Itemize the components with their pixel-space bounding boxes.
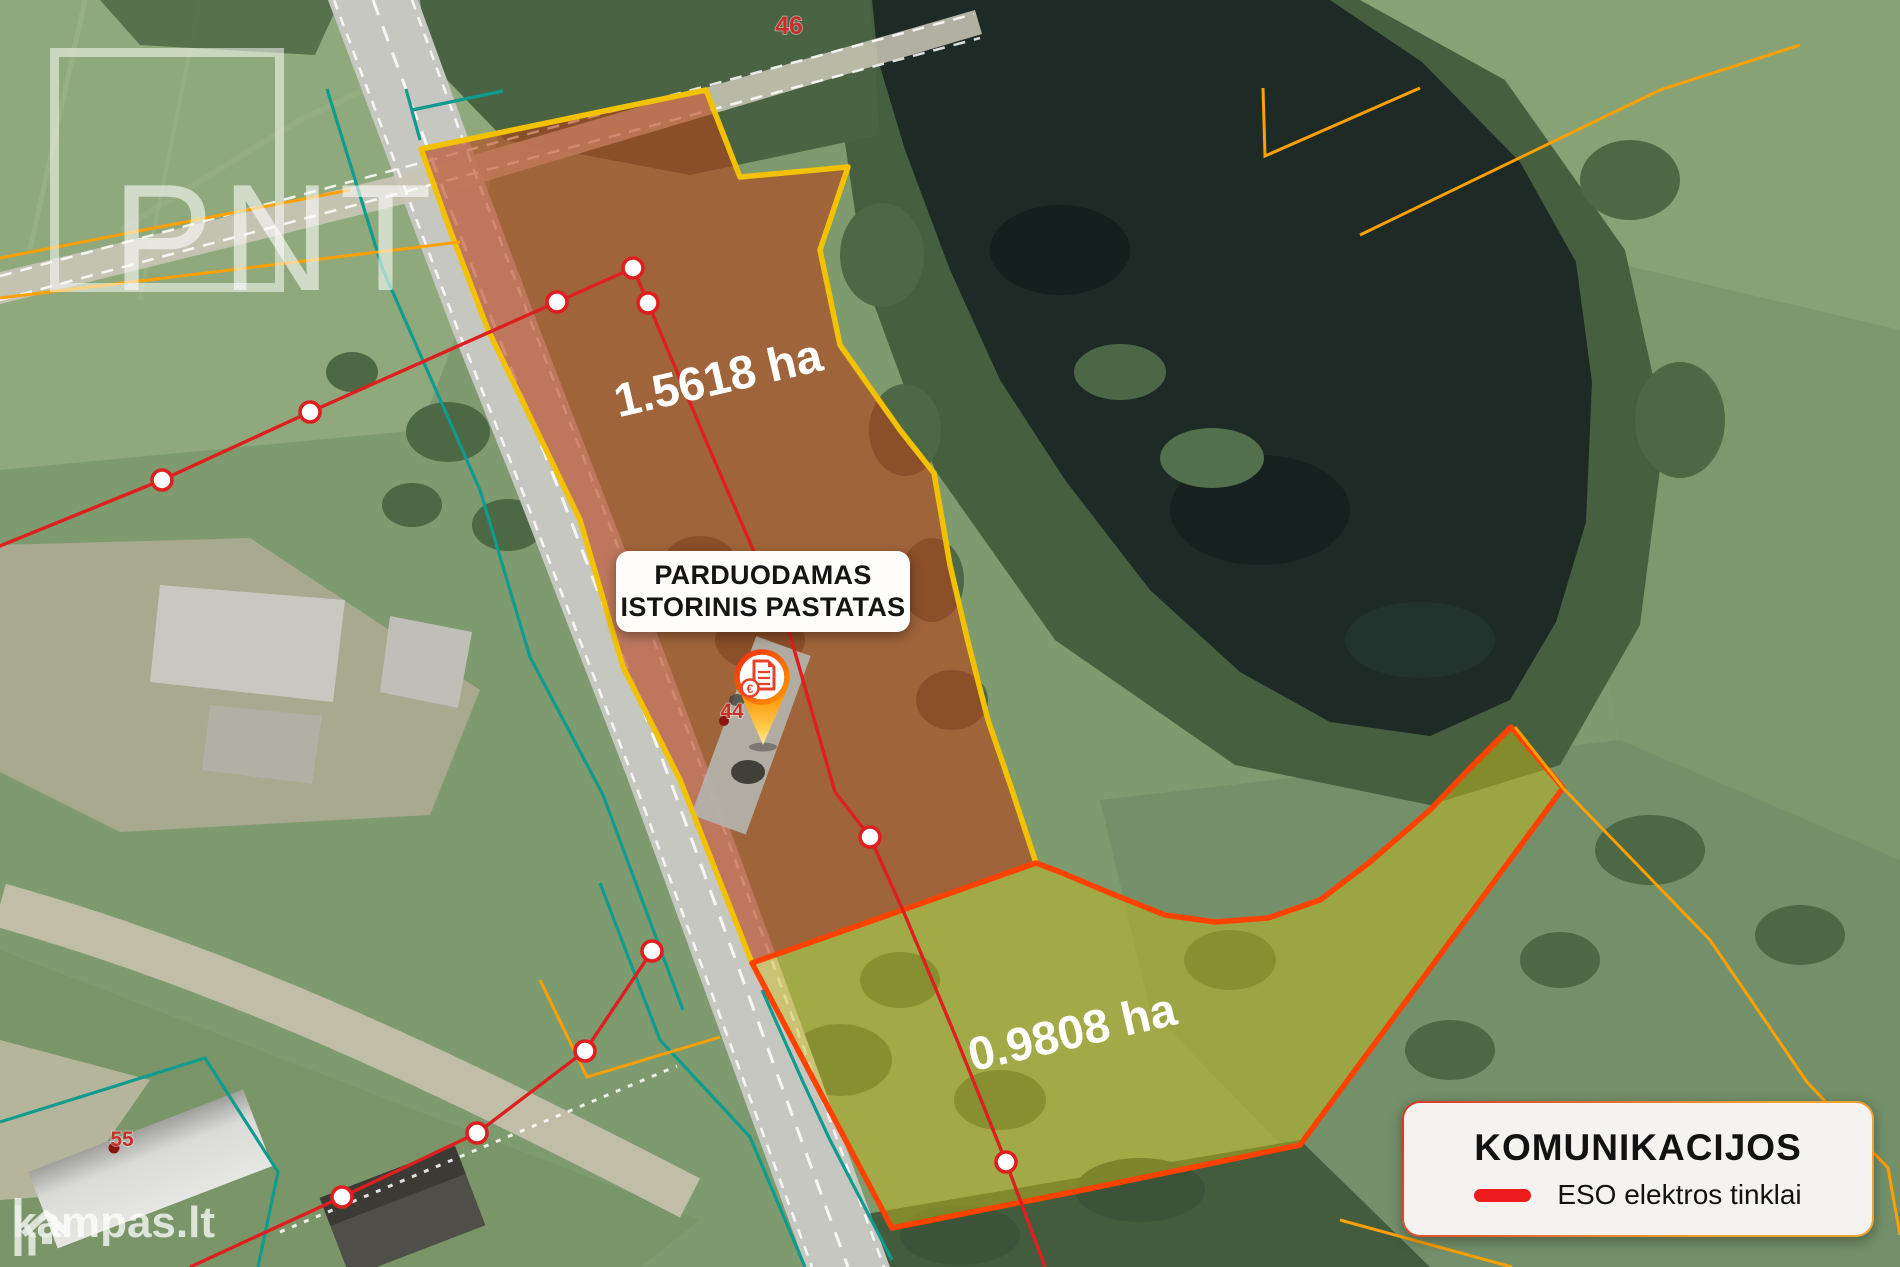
legend: KOMUNIKACIJOS ESO elektros tinklai — [1402, 1101, 1874, 1237]
kampas-house-icon — [12, 1198, 66, 1256]
plot-number-44: 44 — [720, 700, 744, 723]
legend-box: KOMUNIKACIJOS ESO elektros tinklai — [1404, 1103, 1872, 1235]
pnt-watermark-text: PNT — [112, 162, 440, 314]
legend-item: ESO elektros tinklai — [1474, 1179, 1801, 1211]
callout-line1: PARDUODAMAS — [654, 560, 871, 592]
kampas-logo: kampas.lt — [12, 1198, 215, 1248]
plot-number-46: 46 — [775, 12, 803, 40]
legend-item-label: ESO elektros tinklai — [1557, 1179, 1801, 1211]
plot-number-55: 55 — [110, 1128, 134, 1151]
legend-title: KOMUNIKACIJOS — [1474, 1127, 1802, 1169]
sale-callout-card: PARDUODAMAS ISTORINIS PASTATAS — [616, 551, 910, 632]
listing-map-image: 46 44 55 1.5618 ha 0.9808 ha € PNT PARDU… — [0, 0, 1900, 1267]
euro-symbol: € — [747, 682, 754, 696]
callout-line2: ISTORINIS PASTATAS — [621, 592, 906, 624]
power-line-swatch — [1474, 1189, 1531, 1202]
